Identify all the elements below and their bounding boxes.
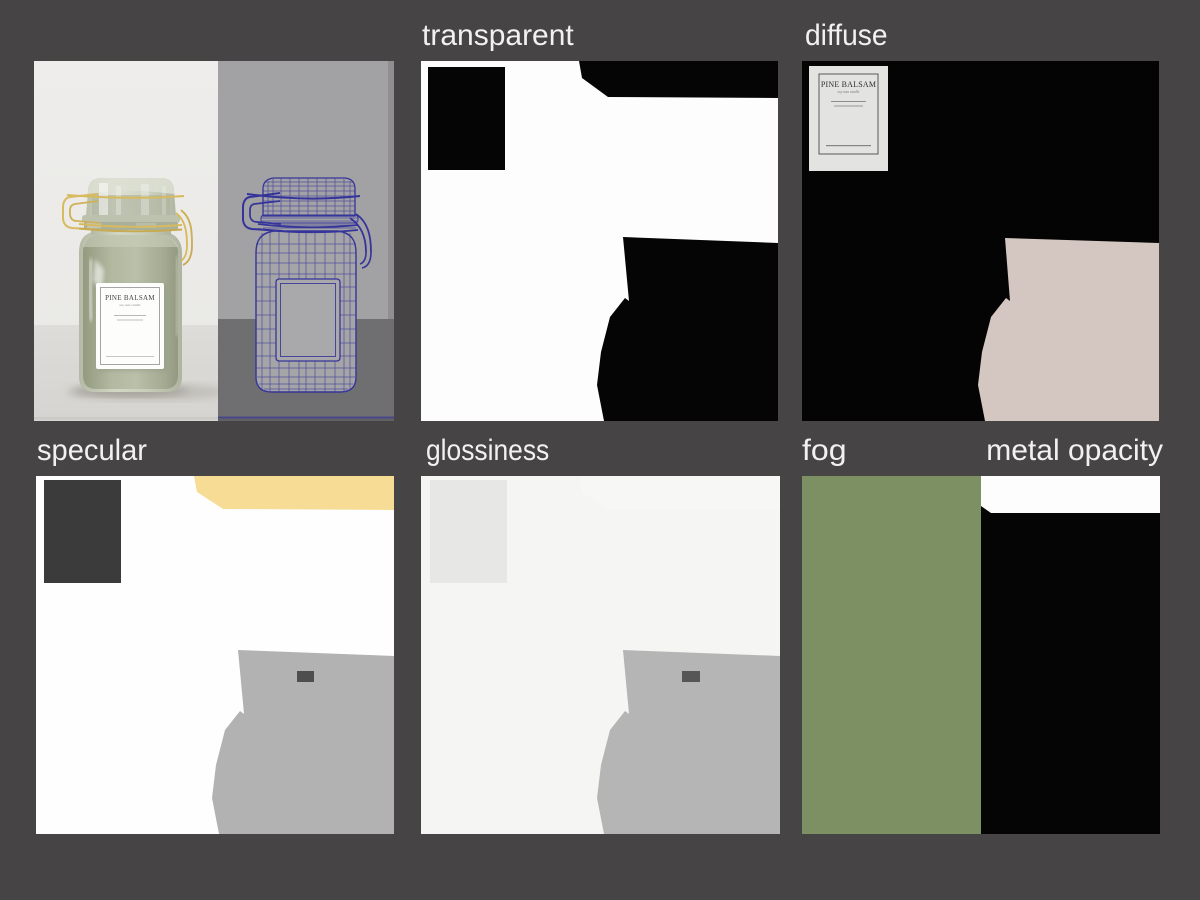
svg-text:soy wax candle: soy wax candle	[838, 90, 860, 94]
svg-text:PINE BALSAM: PINE BALSAM	[105, 294, 155, 302]
svg-text:soy wax candle: soy wax candle	[119, 303, 141, 307]
svg-text:PINE BALSAM: PINE BALSAM	[821, 80, 876, 89]
